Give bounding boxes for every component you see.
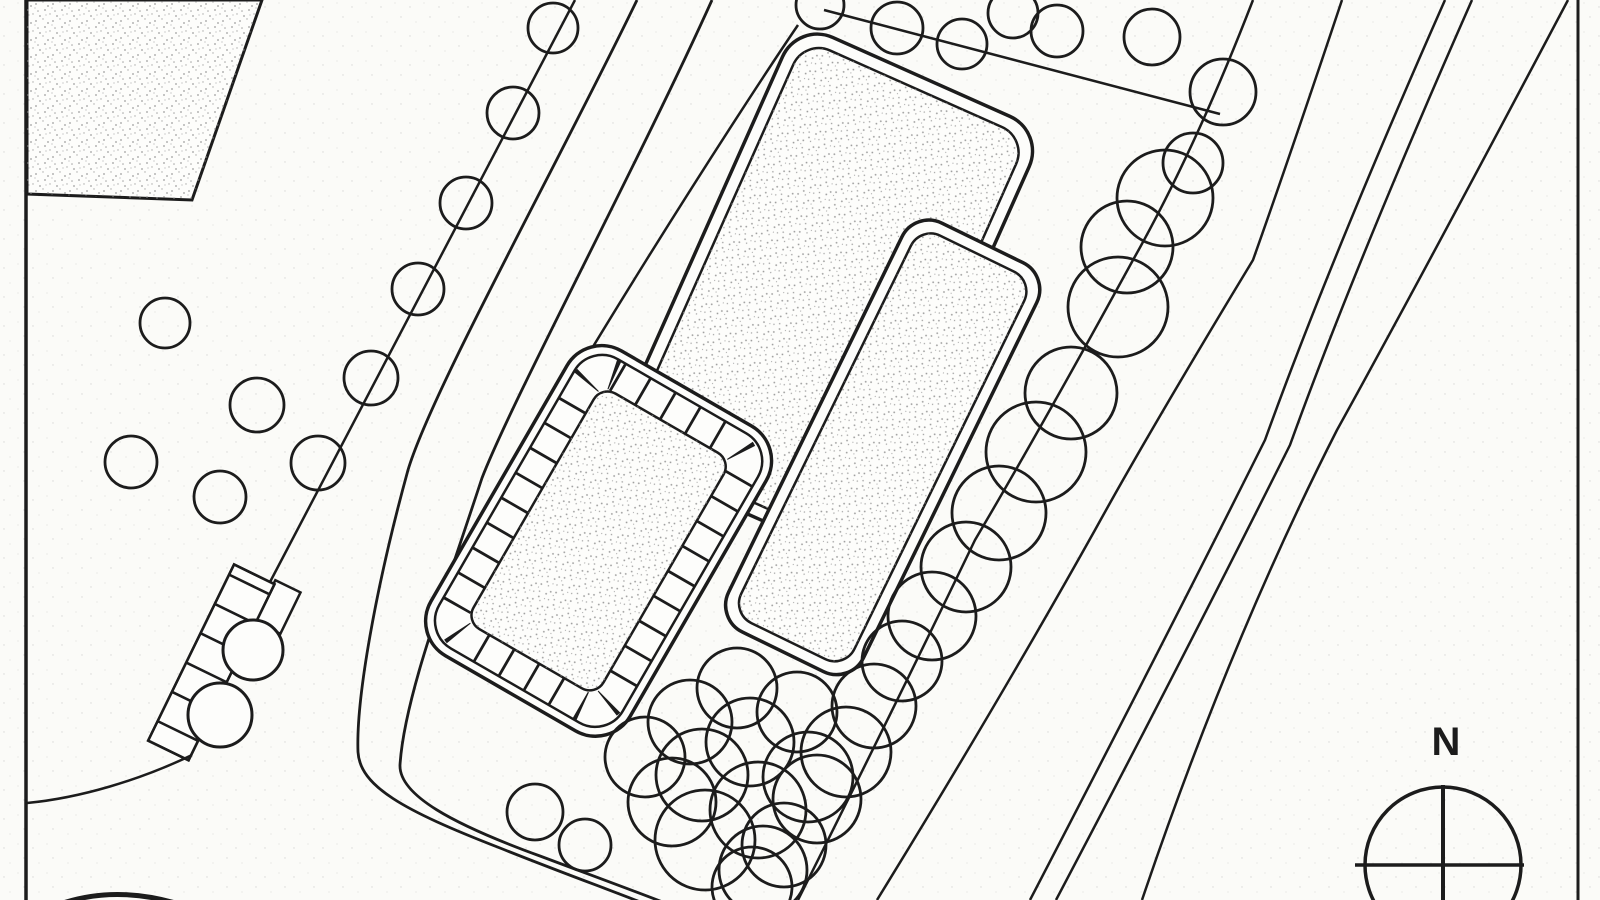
tree-icon: [223, 620, 283, 680]
site-plan-sheet: N: [0, 0, 1600, 900]
site-plan-drawing: N: [0, 0, 1600, 900]
compass-north-label: N: [1432, 720, 1461, 764]
tree-icon: [188, 683, 252, 747]
